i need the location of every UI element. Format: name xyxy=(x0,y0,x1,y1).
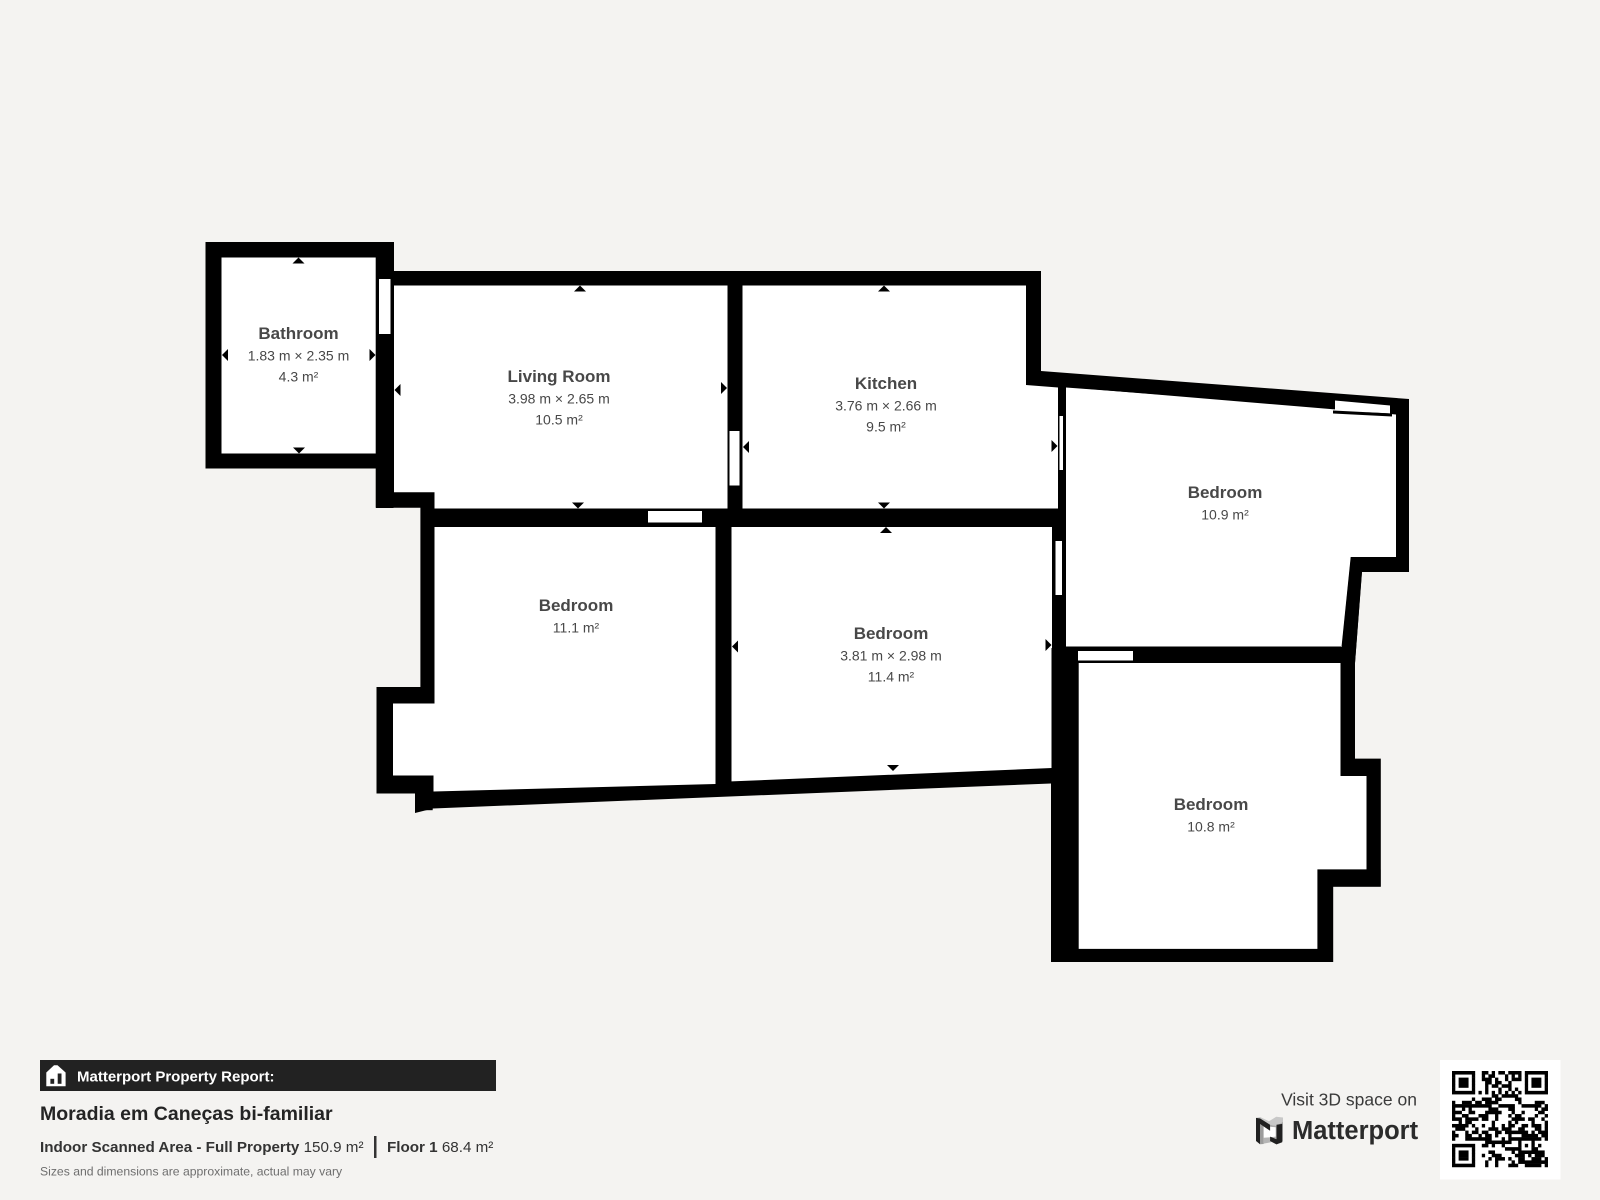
svg-text:10.9 m²: 10.9 m² xyxy=(1201,507,1249,523)
svg-text:11.1 m²: 11.1 m² xyxy=(553,620,600,636)
svg-text:9.5 m²: 9.5 m² xyxy=(866,419,906,435)
svg-text:Kitchen: Kitchen xyxy=(855,374,917,393)
svg-text:Moradia em Caneças bi-familiar: Moradia em Caneças bi-familiar xyxy=(40,1103,333,1125)
svg-text:Matterport: Matterport xyxy=(1292,1117,1419,1145)
svg-text:3.98 m × 2.65 m: 3.98 m × 2.65 m xyxy=(508,391,610,407)
svg-text:Living Room: Living Room xyxy=(508,367,611,386)
svg-text:Sizes and dimensions are appro: Sizes and dimensions are approximate, ac… xyxy=(40,1165,343,1179)
svg-text:Visit 3D space on: Visit 3D space on xyxy=(1281,1090,1417,1110)
svg-text:Bedroom: Bedroom xyxy=(1174,795,1249,814)
svg-text:Floor 1 68.4 m²: Floor 1 68.4 m² xyxy=(387,1139,493,1156)
svg-text:Indoor Scanned Area - Full Pro: Indoor Scanned Area - Full Property 150.… xyxy=(40,1139,364,1156)
svg-text:Bedroom: Bedroom xyxy=(854,624,929,643)
svg-text:Bathroom: Bathroom xyxy=(258,324,338,343)
svg-text:Bedroom: Bedroom xyxy=(539,596,614,615)
svg-text:Matterport Property Report:: Matterport Property Report: xyxy=(77,1069,275,1086)
svg-text:4.3 m²: 4.3 m² xyxy=(279,369,319,385)
svg-text:3.76 m × 2.66 m: 3.76 m × 2.66 m xyxy=(835,398,937,414)
svg-text:11.4 m²: 11.4 m² xyxy=(868,669,915,685)
svg-text:1.83 m × 2.35 m: 1.83 m × 2.35 m xyxy=(248,348,350,364)
svg-text:10.8 m²: 10.8 m² xyxy=(1187,819,1235,835)
svg-text:3.81 m × 2.98 m: 3.81 m × 2.98 m xyxy=(840,648,942,664)
svg-text:Bedroom: Bedroom xyxy=(1188,483,1263,502)
svg-text:10.5 m²: 10.5 m² xyxy=(535,412,583,428)
